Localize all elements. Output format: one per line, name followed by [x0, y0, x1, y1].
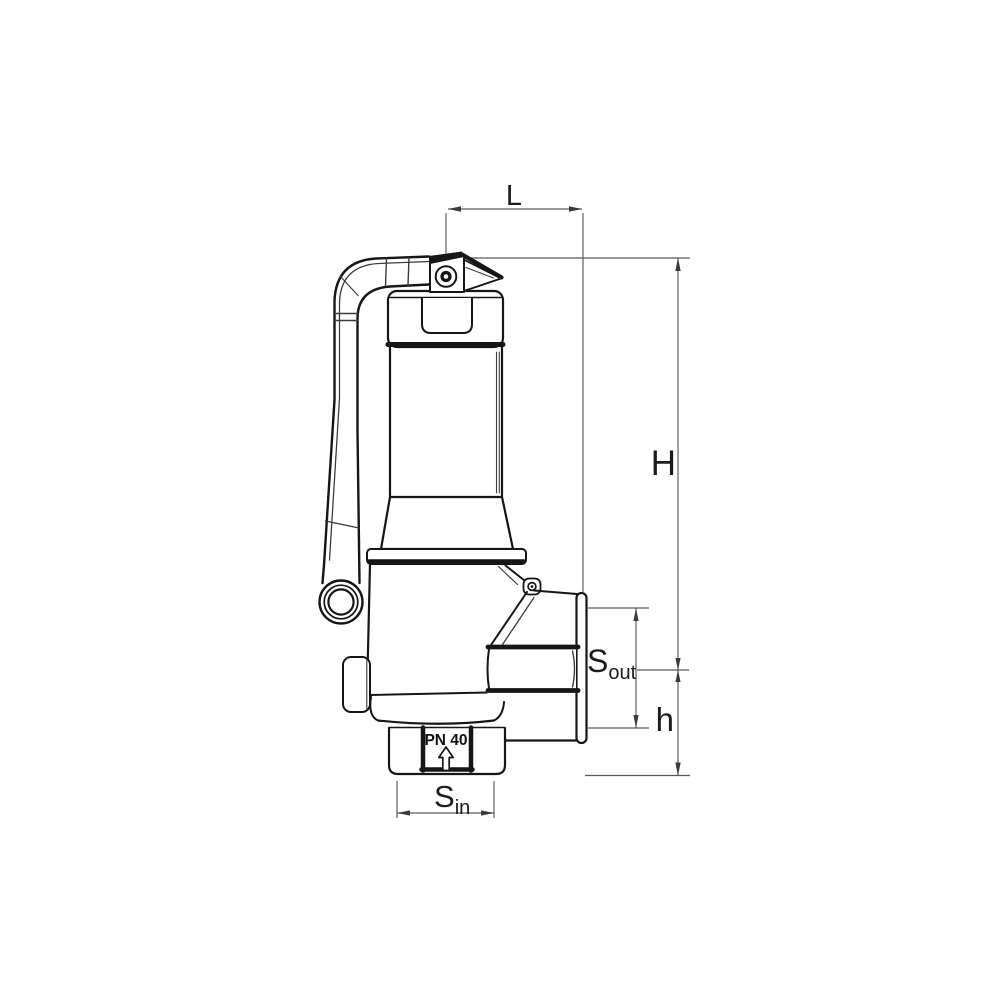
body-step-line [370, 693, 487, 696]
h-total-arrow-bottom [675, 763, 680, 776]
drawing-svg: L H h Sout Sin [0, 0, 1000, 1000]
l-label: L [506, 180, 522, 212]
h-total-arrow-top [675, 258, 680, 271]
s-in-arrow-right [481, 810, 494, 815]
dimension-h: h [637, 658, 689, 738]
outlet-rib-upper-inner [499, 567, 518, 585]
outlet-flange-face [577, 593, 587, 743]
outlet-hex-face [487, 645, 576, 694]
inlet-port: PN 40 [389, 728, 505, 775]
s-out-label: Sout [587, 643, 637, 684]
bonnet-cap [388, 291, 503, 347]
valve-body [343, 497, 583, 741]
s-out-arrow-bottom [633, 715, 638, 728]
l-arrow-left [448, 206, 461, 211]
shoulder-bottom-arc [378, 721, 494, 724]
valve-technical-drawing: L H h Sout Sin [0, 0, 1000, 1000]
s-out-arrow-top [633, 608, 638, 621]
lever-segment-line-6 [326, 521, 360, 528]
dimension-S-in: Sin [397, 779, 494, 819]
h-arrow-down [675, 658, 680, 670]
h-label: h [656, 701, 674, 738]
transition-cone [381, 497, 513, 549]
shoulder-right-curve [494, 702, 504, 721]
lever-segment-line-2 [408, 258, 409, 286]
side-tab [343, 657, 370, 712]
l-arrow-right [569, 206, 582, 211]
pivot-pin-hole [444, 274, 449, 279]
outlet-port [487, 593, 587, 743]
outlet-cone-edge [491, 592, 527, 645]
spring-housing [390, 347, 502, 497]
dimension-S-out: Sout [587, 608, 649, 728]
lever-eyelet-outer [320, 581, 363, 624]
lever-segment-line-1 [386, 258, 387, 286]
h-arrow-up [675, 670, 680, 682]
s-in-arrow-left [397, 810, 410, 815]
lug-hole-center [531, 585, 534, 588]
h-total-label: H [651, 444, 676, 483]
shoulder-left-curve [370, 697, 378, 721]
s-in-label: Sin [434, 779, 470, 819]
adjustment-plug [422, 298, 472, 333]
outlet-rib-upper [506, 566, 525, 581]
